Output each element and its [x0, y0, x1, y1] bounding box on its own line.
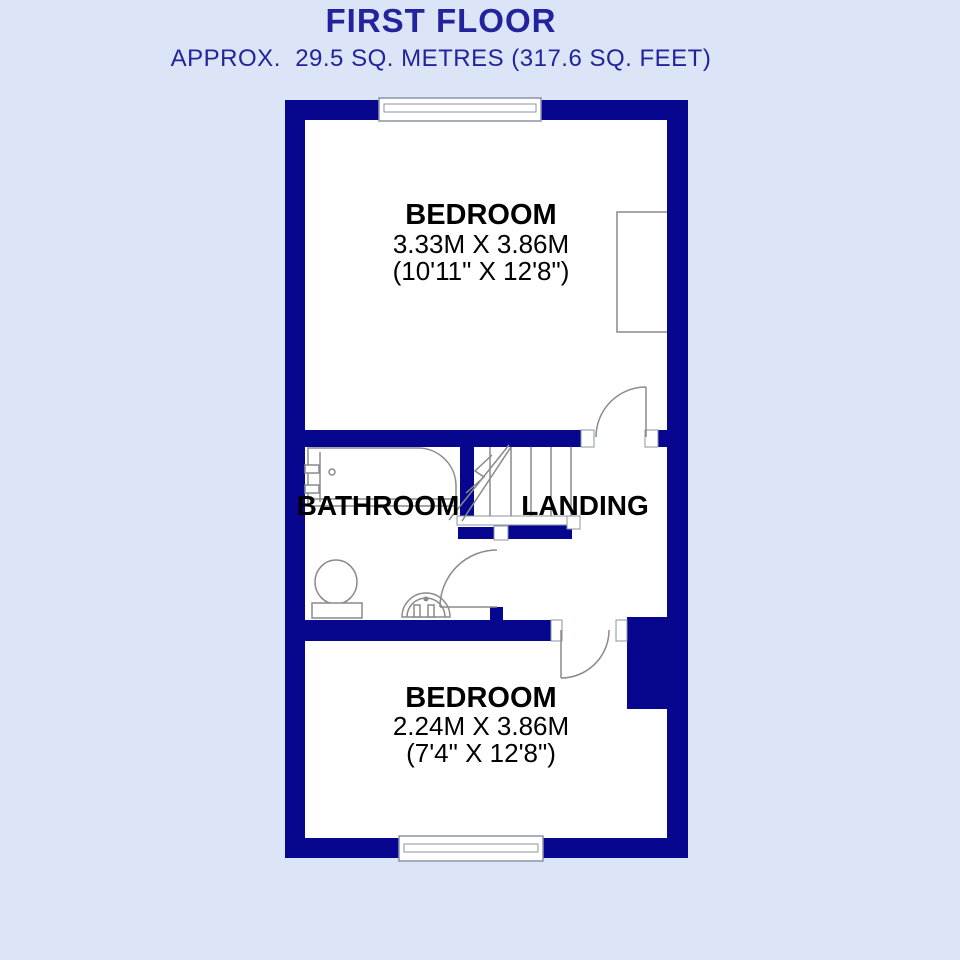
bedroom2-label: BEDROOM [405, 682, 556, 714]
bedroom1-label: BEDROOM [405, 199, 556, 231]
bedroom2-dimensions-imperial: (7'4" X 12'8") [406, 738, 556, 768]
bathtub-tap [305, 465, 319, 473]
wall-bathroom-bedroom2 [285, 620, 551, 641]
jamb-bedroom2-right [616, 620, 627, 641]
wall-stairs-bottom-right [508, 524, 572, 539]
wall-bathroom-stairs [460, 447, 474, 521]
wall-stub-bathroom-corner [490, 607, 503, 622]
jamb-bedroom1-right [645, 430, 658, 447]
window-bottom-glazing [404, 844, 538, 852]
bedroom2-dimensions-metric: 2.24M X 3.86M [393, 711, 569, 741]
bathroom-label: BATHROOM [297, 490, 460, 521]
floorplan-page: FIRST FLOOR APPROX. 29.5 SQ. METRES (317… [0, 0, 960, 960]
wall-left [285, 100, 305, 858]
window-top-glazing [384, 104, 536, 112]
bedroom1-dimensions-metric: 3.33M X 3.86M [393, 229, 569, 259]
floorplan-drawing: BEDROOM 3.33M X 3.86M (10'11" X 12'8") B… [0, 0, 960, 960]
wall-bedroom1-bathroom [285, 430, 581, 447]
chimney-block-bedroom2 [627, 617, 688, 709]
wall-stairs-bottom-left [458, 527, 494, 539]
landing-label: LANDING [521, 490, 649, 521]
sink-tap [428, 605, 434, 617]
wardrobe-outline [617, 212, 669, 332]
sink-tap [414, 605, 420, 617]
toilet-cistern [312, 603, 362, 618]
wall-bedroom1-landing [657, 430, 688, 447]
wall-right [667, 100, 688, 858]
jamb-bedroom1-left [581, 430, 594, 447]
sink-drain [424, 597, 428, 601]
bedroom1-dimensions-imperial: (10'11" X 12'8") [393, 256, 570, 286]
jamb-bathroom-top [494, 526, 508, 540]
